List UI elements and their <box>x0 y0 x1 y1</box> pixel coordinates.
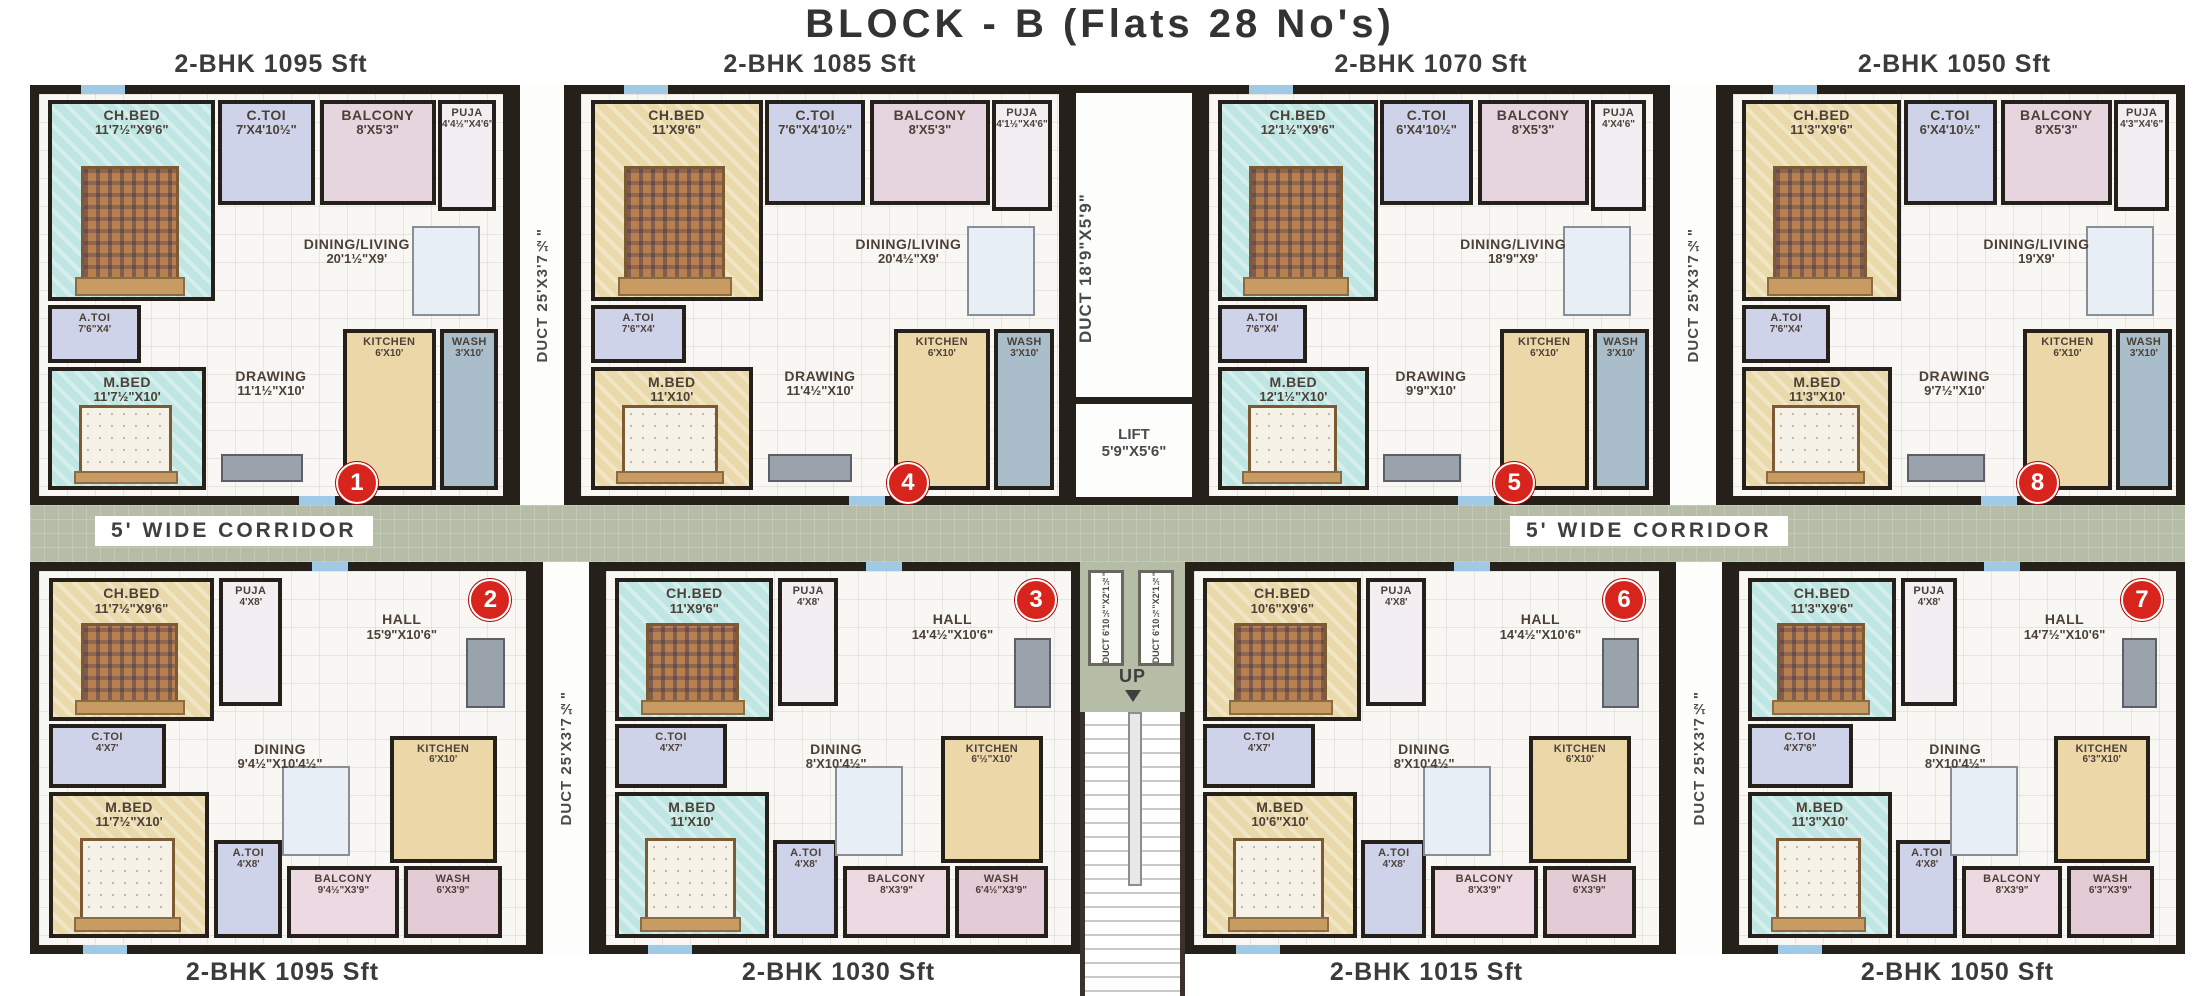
room-dim: 8'X10'4½" <box>1857 757 2054 771</box>
room-ch-bed: CH.BED11'7½"X9'6" <box>48 100 215 301</box>
room-dim: 8'X10'4½" <box>732 757 941 771</box>
room-kitchen: KITCHEN6'½"X10' <box>941 736 1043 863</box>
room-drawing: DRAWING11'1½"X10' <box>208 329 333 490</box>
bed-icon <box>81 166 179 284</box>
room-dim: 18'9"X9' <box>1382 252 1644 266</box>
sofa-icon <box>2122 638 2157 708</box>
bed-icon <box>624 166 725 284</box>
bed-icon <box>1777 623 1865 707</box>
lift: LIFT 5'9"X5'6" <box>1076 397 1192 497</box>
room-dim: 7'6"X4' <box>1746 325 1827 336</box>
room-dim: 4'X8' <box>782 598 834 609</box>
duct-small-right: DUCT 6'10½"X2'1½" <box>1138 570 1174 666</box>
room-puja: PUJA4'4½"X4'6" <box>438 100 496 211</box>
room-name: M.BED <box>1222 375 1365 390</box>
room-dim: 9'7½"X10' <box>1895 384 2015 398</box>
room-dim: 15'9"X10'6" <box>287 628 516 642</box>
room-c-toi: C.TOI6'X4'10½" <box>1904 100 1997 205</box>
duct-label: DUCT 6'10½"X2'1½" <box>1151 572 1161 663</box>
room-name: CH.BED <box>52 108 211 123</box>
lift-dim: 5'9"X5'6" <box>1076 443 1192 460</box>
room-wash: WASH6'X3'9" <box>1543 866 1636 937</box>
room-dim: 4'X7'6" <box>1752 744 1849 755</box>
room-balcony: BALCONY8'X5'3" <box>870 100 990 205</box>
flat-7: CH.BED11'3"X9'6" PUJA4'X8' HALL14'7½"X10… <box>1730 562 2185 954</box>
room-dim: 7'6"X4' <box>595 325 683 336</box>
room-balcony: BALCONY8'X3'9" <box>1962 866 2063 937</box>
room-a-toi: A.TOI4'X8' <box>1896 840 1957 937</box>
flat-4-type-label: 2-BHK 1085 Sft <box>572 50 1068 79</box>
room-dim: 3'X10' <box>2120 349 2167 360</box>
room-dim: 8'X5'3" <box>874 123 986 137</box>
flat-8: CH.BED11'3"X9'6" C.TOI6'X4'10½" BALCONY8… <box>1724 85 2185 505</box>
room-c-toi: C.TOI7'6"X4'10½" <box>765 100 865 205</box>
room-dim: 10'6"X9'6" <box>1207 602 1357 616</box>
sofa-icon <box>1014 638 1051 708</box>
room-dim: 9'4½"X3'9" <box>291 886 395 897</box>
room-dim: 6'X3'9" <box>1547 886 1632 897</box>
room-dim: 7'X4'10½" <box>222 123 311 137</box>
bed-icon <box>80 838 175 924</box>
room-wash: WASH6'4½"X3'9" <box>955 866 1048 937</box>
corridor: 5' WIDE CORRIDOR 5' WIDE CORRIDOR <box>30 505 2185 562</box>
bed-icon <box>1234 623 1327 707</box>
room-dim: 4'1½"X4'6" <box>996 120 1048 131</box>
corridor-label-left: 5' WIDE CORRIDOR <box>95 516 373 546</box>
room-m-bed: M.BED11'3"X10' <box>1742 367 1893 490</box>
room-m-bed: M.BED11'7½"X10' <box>49 792 210 938</box>
room-name: BALCONY <box>2005 108 2108 123</box>
duct-label: DUCT 25'X3'7½" <box>558 691 575 825</box>
sofa-icon <box>1907 454 1985 482</box>
bed-icon <box>646 623 739 707</box>
room-dim: 8'X5'3" <box>1482 123 1585 137</box>
room-ch-bed: CH.BED11'3"X9'6" <box>1742 100 1901 301</box>
room-dining-living: DINING/LIVING20'4½"X9' <box>767 211 1049 324</box>
room-m-bed: M.BED10'6"X10' <box>1203 792 1356 938</box>
room-dim: 7'6"X4'10½" <box>769 123 861 137</box>
flat-8-type-label: 2-BHK 1050 Sft <box>1724 50 2185 79</box>
room-m-bed: M.BED11'7½"X10' <box>48 367 206 490</box>
room-dim: 4'X7' <box>1207 744 1311 755</box>
room-ch-bed: CH.BED11'7½"X9'6" <box>49 578 215 720</box>
sofa-icon <box>1383 454 1461 482</box>
room-balcony: BALCONY8'X5'3" <box>1478 100 1589 205</box>
room-wash: WASH3'X10' <box>2116 329 2171 490</box>
bed-icon <box>1773 166 1867 284</box>
duct-lift-shaft: DUCT 18'9"X5'9" LIFT 5'9"X5'6" <box>1068 85 1200 505</box>
dining-table-icon <box>1423 766 1491 856</box>
flat-7-type-label: 2-BHK 1050 Sft <box>1730 958 2185 987</box>
room-dim: 11'3"X10' <box>1746 390 1889 404</box>
room-name: DINING <box>1857 742 2054 757</box>
room-dim: 11'4½"X10' <box>755 384 884 398</box>
room-dim: 11'X10' <box>595 390 750 404</box>
room-dim: 8'X3'9" <box>1435 886 1534 897</box>
room-name: DINING <box>1320 742 1529 757</box>
room-puja: PUJA4'X8' <box>1366 578 1426 705</box>
room-dim: 4'X8' <box>1370 598 1422 609</box>
room-dim: 11'3"X9'6" <box>1752 602 1893 616</box>
room-ch-bed: CH.BED11'3"X9'6" <box>1748 578 1897 720</box>
bed-icon <box>1233 838 1323 924</box>
room-dim: 6'4½"X3'9" <box>959 886 1044 897</box>
room-m-bed: M.BED11'X10' <box>615 792 768 938</box>
room-name: DINING <box>732 742 941 757</box>
duct-small-left: DUCT 6'10½"X2'1½" <box>1088 570 1124 666</box>
room-puja: PUJA4'3"X4'6" <box>2114 100 2169 211</box>
room-dim: 11'X9'6" <box>595 123 759 137</box>
room-wash: WASH6'3"X3'9" <box>2067 866 2154 937</box>
room-dim: 6'X4'10½" <box>1384 123 1469 137</box>
room-c-toi: C.TOI4'X7'6" <box>1748 724 1853 788</box>
room-name: CH.BED <box>53 586 211 601</box>
room-name: M.BED <box>1746 375 1889 390</box>
room-a-toi: A.TOI7'6"X4' <box>1742 305 1831 363</box>
room-kitchen: KITCHEN6'3"X10' <box>2054 736 2150 863</box>
room-ch-bed: CH.BED11'X9'6" <box>615 578 773 720</box>
room-balcony: BALCONY8'X5'3" <box>320 100 436 205</box>
room-name: C.TOI <box>1384 108 1469 123</box>
room-c-toi: C.TOI6'X4'10½" <box>1380 100 1473 205</box>
room-name: DRAWING <box>1371 369 1491 384</box>
room-name: BALCONY <box>1482 108 1585 123</box>
flat-number-badge: 4 <box>887 462 929 504</box>
duct-label: DUCT 6'10½"X2'1½" <box>1101 572 1111 663</box>
room-kitchen: KITCHEN6'X10' <box>1529 736 1631 863</box>
lift-label: LIFT <box>1076 426 1192 443</box>
room-dim: 3'X10' <box>1597 349 1645 360</box>
floor-plan-canvas: BLOCK - B (Flats 28 No's) 2-BHK 1095 Sft… <box>0 0 2200 996</box>
room-dim: 11'X10' <box>619 815 764 829</box>
room-puja: PUJA4'X8' <box>219 578 282 705</box>
room-dim: 20'1½"X9' <box>220 252 494 266</box>
room-dim: 19'X9' <box>1906 252 2167 266</box>
room-dim: 12'1½"X10' <box>1222 390 1365 404</box>
room-dim: 11'3"X9'6" <box>1746 123 1897 137</box>
flat-5-type-label: 2-BHK 1070 Sft <box>1200 50 1662 79</box>
room-dim: 4'X7' <box>619 744 723 755</box>
room-name: C.TOI <box>1908 108 1993 123</box>
room-dim: 6'X10' <box>394 755 493 766</box>
room-name: DINING/LIVING <box>767 237 1049 252</box>
room-dim: 8'X10'4½" <box>1320 757 1529 771</box>
room-dim: 4'X8' <box>777 860 834 871</box>
room-name: CH.BED <box>1207 586 1357 601</box>
room-balcony: BALCONY8'X3'9" <box>843 866 950 937</box>
room-dim: 9'4½"X10'4½" <box>170 757 389 771</box>
room-a-toi: A.TOI4'X8' <box>1361 840 1426 937</box>
flat-number-badge: 6 <box>1603 579 1645 621</box>
room-dim: 6'X10' <box>2027 349 2108 360</box>
room-balcony: BALCONY8'X3'9" <box>1431 866 1538 937</box>
room-wash: WASH6'X3'9" <box>404 866 501 937</box>
room-dim: 4'X8' <box>1905 598 1954 609</box>
flat-2: CH.BED11'7½"X9'6" PUJA4'X8' HALL15'9"X10… <box>30 562 535 954</box>
room-name: M.BED <box>53 800 206 815</box>
duct-shaft-top-right: DUCT 25'X3'7½" <box>1662 85 1724 505</box>
duct-label: DUCT 25'X3'7½" <box>534 228 551 362</box>
bed-icon <box>81 623 178 707</box>
room-drawing: DRAWING9'9"X10' <box>1371 329 1491 490</box>
stairwell: DUCT 6'10½"X2'1½" DUCT 6'10½"X2'1½" UP <box>1080 562 1185 996</box>
room-dim: 14'4½"X10'6" <box>843 628 1062 642</box>
room-wash: WASH3'X10' <box>994 329 1054 490</box>
flat-1-type-label: 2-BHK 1095 Sft <box>30 50 512 79</box>
room-name: CH.BED <box>1752 586 1893 601</box>
flat-3-type-label: 2-BHK 1030 Sft <box>597 958 1080 987</box>
room-c-toi: C.TOI4'X7' <box>615 724 727 788</box>
room-c-toi: C.TOI4'X7' <box>1203 724 1315 788</box>
room-name: M.BED <box>1207 800 1352 815</box>
room-a-toi: A.TOI7'6"X4' <box>591 305 687 363</box>
room-drawing: DRAWING11'4½"X10' <box>755 329 884 490</box>
room-name: M.BED <box>1752 800 1888 815</box>
bed-icon <box>1772 405 1861 477</box>
room-dim: 11'X9'6" <box>619 602 769 616</box>
room-name: CH.BED <box>595 108 759 123</box>
bed-icon <box>1776 838 1861 924</box>
room-name: CH.BED <box>1746 108 1897 123</box>
room-name: DINING/LIVING <box>220 237 494 252</box>
room-m-bed: M.BED11'3"X10' <box>1748 792 1892 938</box>
room-dim: 8'X5'3" <box>2005 123 2108 137</box>
room-balcony: BALCONY9'4½"X3'9" <box>287 866 399 937</box>
duct-shaft-bottom-right: DUCT 25'X3'7½" <box>1668 562 1730 954</box>
dining-table-icon <box>282 766 350 856</box>
room-dim: 6'X3'9" <box>408 886 497 897</box>
bed-icon <box>79 405 172 477</box>
room-puja: PUJA4'X4'6" <box>1591 100 1647 211</box>
room-dim: 9'9"X10' <box>1371 384 1491 398</box>
sofa-icon <box>221 454 303 482</box>
flat-5: CH.BED12'1½"X9'6" C.TOI6'X4'10½" BALCONY… <box>1200 85 1662 505</box>
room-name: DINING/LIVING <box>1906 237 2167 252</box>
room-puja: PUJA4'X8' <box>778 578 838 705</box>
room-name: BALCONY <box>874 108 986 123</box>
flat-number-badge: 7 <box>2121 579 2163 621</box>
room-name: DINING/LIVING <box>1382 237 1644 252</box>
room-balcony: BALCONY8'X5'3" <box>2001 100 2112 205</box>
dining-table-icon <box>1950 766 2018 856</box>
room-dim: 4'3"X4'6" <box>2118 120 2165 131</box>
plan-title: BLOCK - B (Flats 28 No's) <box>0 2 2200 47</box>
room-dining-living: DINING/LIVING19'X9' <box>1906 211 2167 324</box>
room-a-toi: A.TOI4'X8' <box>773 840 838 937</box>
room-dining-living: DINING/LIVING18'9"X9' <box>1382 211 1644 324</box>
sofa-icon <box>768 454 852 482</box>
stairs-up-label: UP <box>1080 666 1185 687</box>
sofa-icon <box>1602 638 1639 708</box>
flat-6-type-label: 2-BHK 1015 Sft <box>1185 958 1668 987</box>
room-dim: 4'X8' <box>1365 860 1422 871</box>
room-name: M.BED <box>619 800 764 815</box>
room-dim: 3'X10' <box>998 349 1050 360</box>
room-a-toi: A.TOI4'X8' <box>214 840 282 937</box>
room-name: DINING <box>170 742 389 757</box>
sofa-icon <box>466 638 504 708</box>
room-dim: 6'X4'10½" <box>1908 123 1993 137</box>
room-dim: 11'3"X10' <box>1752 815 1888 829</box>
room-dim: 8'X3'9" <box>847 886 946 897</box>
room-m-bed: M.BED11'X10' <box>591 367 754 490</box>
room-name: CH.BED <box>619 586 769 601</box>
room-dim: 6'X10' <box>898 349 986 360</box>
room-dim: 7'6"X4' <box>1222 325 1303 336</box>
room-name: DRAWING <box>755 369 884 384</box>
room-dim: 14'7½"X10'6" <box>1962 628 2167 642</box>
room-dim: 6'3"X3'9" <box>2071 886 2150 897</box>
duct-label: DUCT 25'X3'7½" <box>1685 228 1702 362</box>
flat-number-badge: 1 <box>336 462 378 504</box>
room-m-bed: M.BED12'1½"X10' <box>1218 367 1369 490</box>
room-dim: 14'4½"X10'6" <box>1431 628 1650 642</box>
room-a-toi: A.TOI7'6"X4' <box>1218 305 1307 363</box>
room-dim: 4'4½"X4'6" <box>442 120 492 131</box>
room-dim: 8'X3'9" <box>1966 886 2059 897</box>
flat-number-badge: 5 <box>1493 462 1535 504</box>
room-dim: 11'7½"X10' <box>52 390 202 404</box>
flat-1: CH.BED11'7½"X9'6" C.TOI7'X4'10½" BALCONY… <box>30 85 512 505</box>
duct-shaft-top-left: DUCT 25'X3'7½" <box>512 85 572 505</box>
room-dim: 11'7½"X9'6" <box>53 602 211 616</box>
flat-2-type-label: 2-BHK 1095 Sft <box>30 958 535 987</box>
corridor-label-right: 5' WIDE CORRIDOR <box>1510 516 1788 546</box>
room-c-toi: C.TOI7'X4'10½" <box>218 100 315 205</box>
bed-icon <box>645 838 735 924</box>
duct-label: DUCT 18'9"X5'9" <box>1076 123 1192 343</box>
room-name: BALCONY <box>324 108 432 123</box>
flat-number-badge: 8 <box>2017 462 2059 504</box>
room-dim: 6'½"X10' <box>945 755 1039 766</box>
duct-shaft-bottom-left: DUCT 25'X3'7½" <box>535 562 597 954</box>
room-c-toi: C.TOI4'X7' <box>49 724 166 788</box>
room-dim: 10'6"X10' <box>1207 815 1352 829</box>
room-dim: 6'X10' <box>1533 755 1627 766</box>
room-ch-bed: CH.BED11'X9'6" <box>591 100 763 301</box>
room-dim: 4'X8' <box>223 598 278 609</box>
room-dim: 20'4½"X9' <box>767 252 1049 266</box>
room-dim: 4'X7' <box>53 744 162 755</box>
duct-label: DUCT 25'X3'7½" <box>1691 691 1708 825</box>
flat-3: CH.BED11'X9'6" PUJA4'X8' HALL14'4½"X10'6… <box>597 562 1080 954</box>
flat-4: CH.BED11'X9'6" C.TOI7'6"X4'10½" BALCONY8… <box>572 85 1068 505</box>
room-wash: WASH3'X10' <box>1593 329 1649 490</box>
room-name: M.BED <box>52 375 202 390</box>
room-dim: 6'X10' <box>347 349 432 360</box>
room-kitchen: KITCHEN6'X10' <box>390 736 497 863</box>
room-name: DRAWING <box>208 369 333 384</box>
stairs <box>1080 712 1185 996</box>
room-drawing: DRAWING9'7½"X10' <box>1895 329 2015 490</box>
room-dim: 6'3"X10' <box>2058 755 2146 766</box>
room-name: M.BED <box>595 375 750 390</box>
room-wash: WASH3'X10' <box>440 329 498 490</box>
room-dim: 4'X8' <box>1900 860 1953 871</box>
room-dining-living: DINING/LIVING20'1½"X9' <box>220 211 494 324</box>
room-name: C.TOI <box>769 108 861 123</box>
room-dim: 4'X4'6" <box>1595 120 1643 131</box>
bed-icon <box>1248 405 1337 477</box>
room-dim: 3'X10' <box>444 349 494 360</box>
room-name: CH.BED <box>1222 108 1374 123</box>
room-dim: 12'1½"X9'6" <box>1222 123 1374 137</box>
bed-icon <box>622 405 718 477</box>
bed-icon <box>1249 166 1343 284</box>
room-dim: 4'X8' <box>218 860 278 871</box>
flat-number-badge: 3 <box>1015 579 1057 621</box>
room-puja: PUJA4'1½"X4'6" <box>992 100 1052 211</box>
room-ch-bed: CH.BED12'1½"X9'6" <box>1218 100 1378 301</box>
room-a-toi: A.TOI7'6"X4' <box>48 305 141 363</box>
down-arrow-icon <box>1125 690 1141 702</box>
room-dim: 8'X5'3" <box>324 123 432 137</box>
room-dim: 11'7½"X10' <box>53 815 206 829</box>
room-name: C.TOI <box>222 108 311 123</box>
dining-table-icon <box>835 766 903 856</box>
flat-6: CH.BED10'6"X9'6" PUJA4'X8' HALL14'4½"X10… <box>1185 562 1668 954</box>
room-name: DRAWING <box>1895 369 2015 384</box>
room-dim: 7'6"X4' <box>52 325 137 336</box>
room-ch-bed: CH.BED10'6"X9'6" <box>1203 578 1361 720</box>
room-dim: 11'7½"X9'6" <box>52 123 211 137</box>
room-dim: 11'1½"X10' <box>208 384 333 398</box>
room-dim: 6'X10' <box>1504 349 1585 360</box>
room-puja: PUJA4'X8' <box>1901 578 1958 705</box>
